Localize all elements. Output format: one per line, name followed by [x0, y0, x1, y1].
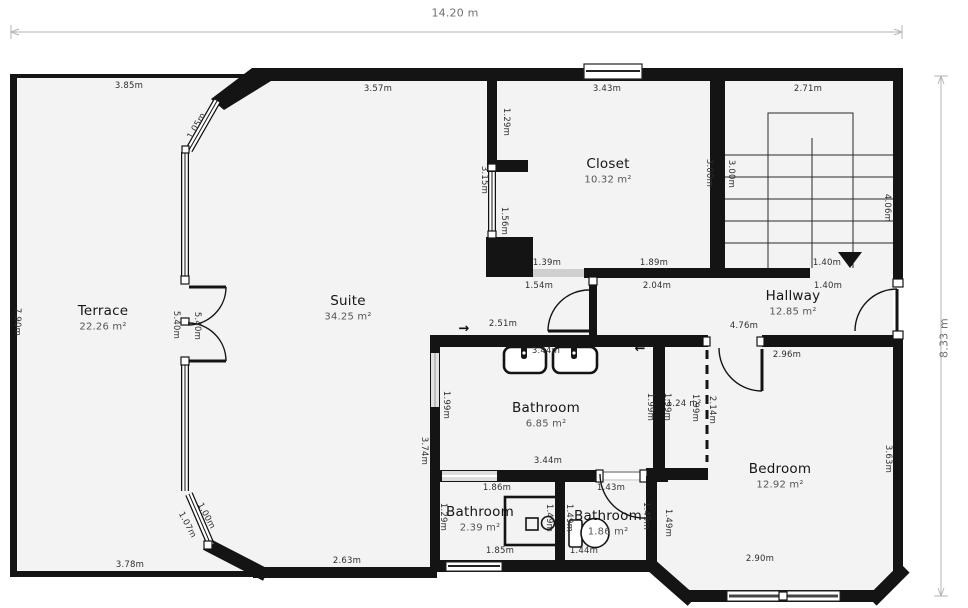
dimension-label: 1.49m	[641, 502, 651, 530]
room-area-label: 22.26 m²	[79, 322, 126, 333]
direction-arrow: →	[458, 322, 469, 337]
room-area-label: 12.92 m²	[756, 480, 803, 491]
stairs-bottom-wall	[710, 268, 810, 278]
room-area-label: 2.39 m²	[460, 523, 501, 534]
suite-bottom-wall	[253, 567, 437, 578]
dimension-label: 1.44m	[570, 546, 598, 556]
dimension-label: 1.40m	[814, 281, 842, 291]
dimension-label: 7.90m	[12, 308, 22, 336]
corner-block	[646, 468, 668, 482]
room-name-label: Suite	[330, 293, 365, 309]
room-name-label: Hallway	[766, 288, 821, 304]
overall-width-label: 14.20 m	[431, 7, 478, 20]
dimension-label: 2.04m	[643, 281, 671, 291]
closet-bottom-stub	[666, 468, 708, 480]
dimension-label: 2.51m	[489, 319, 517, 329]
dimension-label: 1.29m	[438, 503, 448, 531]
dimension-label: 4.76m	[730, 321, 758, 331]
dimension-label: 1.40m	[813, 258, 841, 268]
room-name-label: Bathroom	[574, 508, 642, 524]
direction-arrow: ←	[634, 342, 645, 357]
dimension-label: 1.56m	[499, 207, 509, 235]
dimension-label: 1.39m	[533, 258, 561, 268]
dimension-label: 5.40m	[192, 312, 202, 340]
room-area-label: 34.25 m²	[324, 312, 371, 323]
dimension-label: 4.06m	[882, 194, 892, 222]
dimension-label: 2.90m	[746, 554, 774, 564]
dimension-label: 1.89m	[640, 258, 668, 268]
dimension-label: 1.99m	[690, 394, 700, 422]
dimension-label: 3.78m	[116, 560, 144, 570]
room-area-label: 10.32 m²	[584, 175, 631, 186]
dimension-label: 3.00m	[726, 160, 736, 188]
dimension-label: 3.43m	[593, 84, 621, 94]
hallway-door-stub	[589, 285, 597, 337]
dimension-label: 1.29m	[501, 108, 511, 136]
dimension-label: 3.85m	[115, 81, 143, 91]
dimension-label: 2.96m	[773, 350, 801, 360]
bathroom-top-window[interactable]	[442, 471, 497, 481]
dimension-label: 3.74m	[419, 437, 429, 465]
dimension-label: 5.40m	[171, 311, 181, 339]
terrace-top-wall	[10, 74, 255, 78]
dimension-label: 3.15m	[479, 166, 489, 194]
dimension-label: 1.49m	[663, 509, 673, 537]
dimension-label: 1.86m	[483, 483, 511, 493]
dimension-label: 2.63m	[333, 556, 361, 566]
dimension-label: 2.71m	[794, 84, 822, 94]
corner-column	[486, 237, 533, 277]
terrace-bottom-wall	[10, 571, 258, 577]
hallway-bottom-wall-left	[430, 335, 708, 347]
room-area-label: 6.85 m²	[526, 419, 567, 430]
dimension-label: 1.54m	[525, 281, 553, 291]
dimension-label: 3.57m	[364, 84, 392, 94]
room-area-label: 12.85 m²	[769, 307, 816, 318]
dimension-label: 1.49m	[544, 504, 554, 532]
dimension-label: 3.44m	[534, 456, 562, 466]
closet-passage-opening	[533, 269, 584, 277]
bathroom-left-window[interactable]	[431, 353, 439, 407]
closet-top-window[interactable]	[584, 64, 642, 79]
room-name-label: Closet	[586, 156, 629, 172]
room-name-label: Bathroom	[512, 400, 580, 416]
room-name-label: Bathroom	[446, 504, 514, 520]
dimension-label: 3.44m	[532, 346, 560, 356]
dimension-label: 1.85m	[486, 546, 514, 556]
bathroom-bottom-window[interactable]	[446, 562, 502, 571]
floorplan-canvas: 14.20 m 8.33 m Terrace22.26 m²Suite34.25…	[0, 0, 968, 608]
dimension-label: 1.99m	[645, 393, 655, 421]
top-wall	[252, 68, 903, 81]
overall-height-label: 8.33 m	[938, 318, 951, 358]
hallway-bottom-wall-right	[762, 335, 903, 347]
dimension-label: 3.63m	[883, 445, 893, 473]
dimension-label: 1.99m	[441, 391, 451, 419]
room-name-label: Bedroom	[749, 461, 811, 477]
dimension-label: 1.43m	[597, 483, 625, 493]
dimension-label: 1.49m	[564, 504, 574, 532]
dimension-label: 3.00m	[704, 159, 714, 187]
dimension-label: 2.14m	[707, 396, 717, 424]
room-name-label: Terrace	[78, 303, 129, 319]
room-area-label: 1.86 m²	[588, 527, 629, 538]
closet-bottom-wall	[584, 268, 710, 278]
closet-left-wall	[487, 76, 497, 164]
